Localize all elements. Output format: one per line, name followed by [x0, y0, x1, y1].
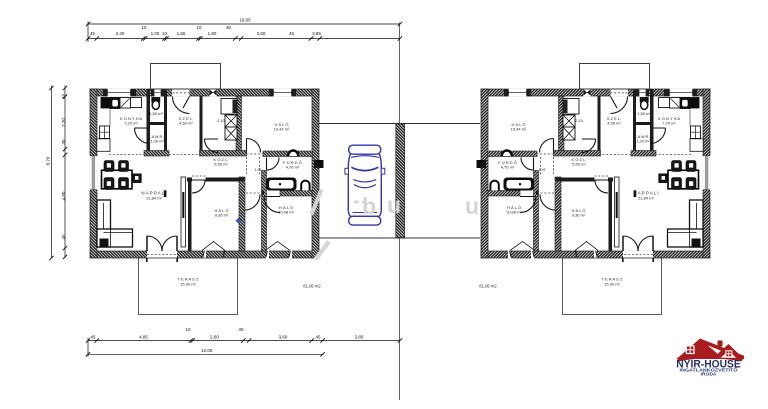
svg-text:10: 10 [185, 327, 191, 332]
svg-text:10: 10 [196, 25, 202, 30]
svg-text:9,36 m²: 9,36 m² [572, 213, 586, 218]
svg-text:4,76 m²: 4,76 m² [286, 165, 300, 170]
svg-text:2,70: 2,70 [61, 118, 66, 127]
svg-text:12,05: 12,05 [201, 348, 213, 353]
svg-text:1,00: 1,00 [151, 31, 160, 36]
svg-text:45: 45 [289, 31, 295, 36]
svg-text:7,20 m²: 7,20 m² [124, 121, 138, 126]
svg-text:9,36 m²: 9,36 m² [215, 213, 229, 218]
svg-text:30: 30 [226, 25, 232, 30]
svg-text:15,30 m²: 15,30 m² [180, 282, 196, 287]
svg-text:10,44 m²: 10,44 m² [274, 127, 290, 132]
svg-text:4,76 m²: 4,76 m² [501, 165, 515, 170]
svg-text:15,30 m²: 15,30 m² [604, 282, 620, 287]
svg-text:3,60: 3,60 [279, 335, 288, 340]
svg-text:30: 30 [61, 139, 66, 145]
svg-text:8,70: 8,70 [46, 156, 51, 165]
svg-text:1,92: 1,92 [255, 168, 262, 172]
svg-text:10,44 m²: 10,44 m² [511, 127, 527, 132]
svg-text:2,60: 2,60 [210, 335, 219, 340]
svg-text:4,50 m²: 4,50 m² [607, 121, 621, 126]
svg-text:2,10: 2,10 [217, 118, 226, 123]
svg-text:1,20 m²: 1,20 m² [636, 139, 650, 144]
svg-text:81,06 m2: 81,06 m2 [479, 284, 497, 289]
svg-text:2,10: 2,10 [575, 118, 584, 123]
svg-text:3,60: 3,60 [257, 31, 266, 36]
svg-text:3,85: 3,85 [312, 31, 321, 36]
svg-text:2,40: 2,40 [116, 31, 125, 36]
svg-text:5,50 m²: 5,50 m² [214, 162, 228, 167]
svg-text:21,84 m²: 21,84 m² [146, 196, 162, 201]
svg-text:45: 45 [90, 335, 96, 340]
svg-text:21,84 m²: 21,84 m² [638, 196, 654, 201]
svg-text:1,80: 1,80 [208, 31, 217, 36]
svg-text:IRODA: IRODA [701, 371, 717, 376]
svg-text:10,08 m²: 10,08 m² [278, 210, 294, 215]
svg-text:30: 30 [238, 327, 244, 332]
svg-text:4,85: 4,85 [139, 335, 148, 340]
svg-text:1,50 m²: 1,50 m² [149, 111, 163, 116]
svg-text:45: 45 [315, 335, 321, 340]
svg-text:3,85: 3,85 [355, 335, 364, 340]
svg-text:u: u [387, 192, 401, 218]
svg-text:4,50 m²: 4,50 m² [179, 121, 193, 126]
svg-text:16,05: 16,05 [239, 17, 251, 22]
svg-text:1,65: 1,65 [177, 31, 186, 36]
svg-text:7,20 m²: 7,20 m² [662, 121, 676, 126]
svg-text:45: 45 [90, 31, 96, 36]
svg-text:1,50 m²: 1,50 m² [637, 111, 651, 116]
svg-text:u: u [465, 193, 479, 219]
svg-text:1,20 m²: 1,20 m² [150, 139, 164, 144]
svg-text:45: 45 [61, 94, 66, 100]
svg-text:10: 10 [141, 25, 147, 30]
svg-text:5,50 m²: 5,50 m² [572, 162, 586, 167]
svg-text:45: 45 [61, 234, 66, 240]
svg-text:10,08 m²: 10,08 m² [506, 210, 522, 215]
svg-text:81,06 m2: 81,06 m2 [303, 284, 321, 289]
svg-text:1,92: 1,92 [539, 168, 546, 172]
svg-text:4,80: 4,80 [61, 191, 66, 200]
svg-text:b: b [362, 193, 376, 219]
svg-text:10: 10 [162, 31, 168, 36]
